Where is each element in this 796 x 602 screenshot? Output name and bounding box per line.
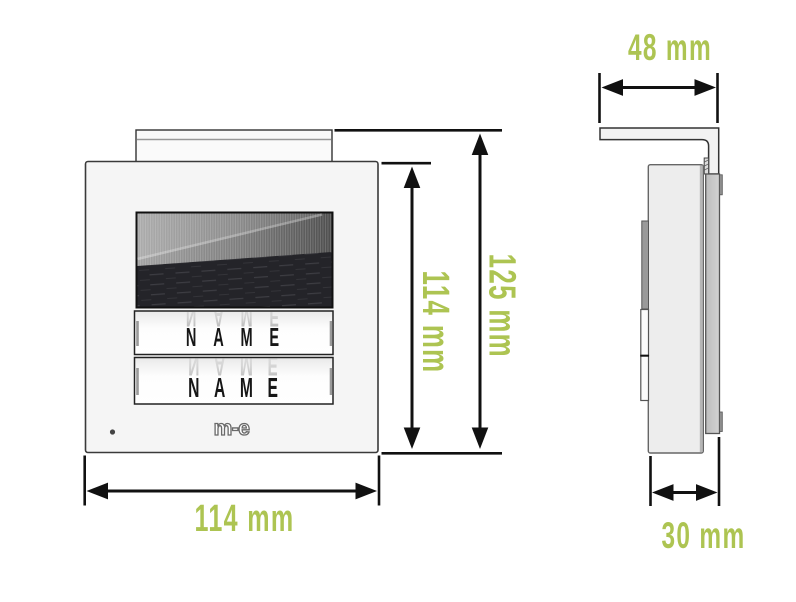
svg-text:30 mm: 30 mm	[662, 515, 746, 556]
svg-text:125 mm: 125 mm	[481, 254, 523, 358]
svg-text:114 mm: 114 mm	[415, 271, 457, 374]
svg-text:m-e: m-e	[214, 417, 250, 440]
svg-text:48 mm: 48 mm	[628, 27, 712, 68]
svg-text:114 mm: 114 mm	[195, 497, 295, 539]
svg-text:NAME: NAME	[188, 371, 292, 403]
svg-text:NAME: NAME	[186, 324, 296, 352]
